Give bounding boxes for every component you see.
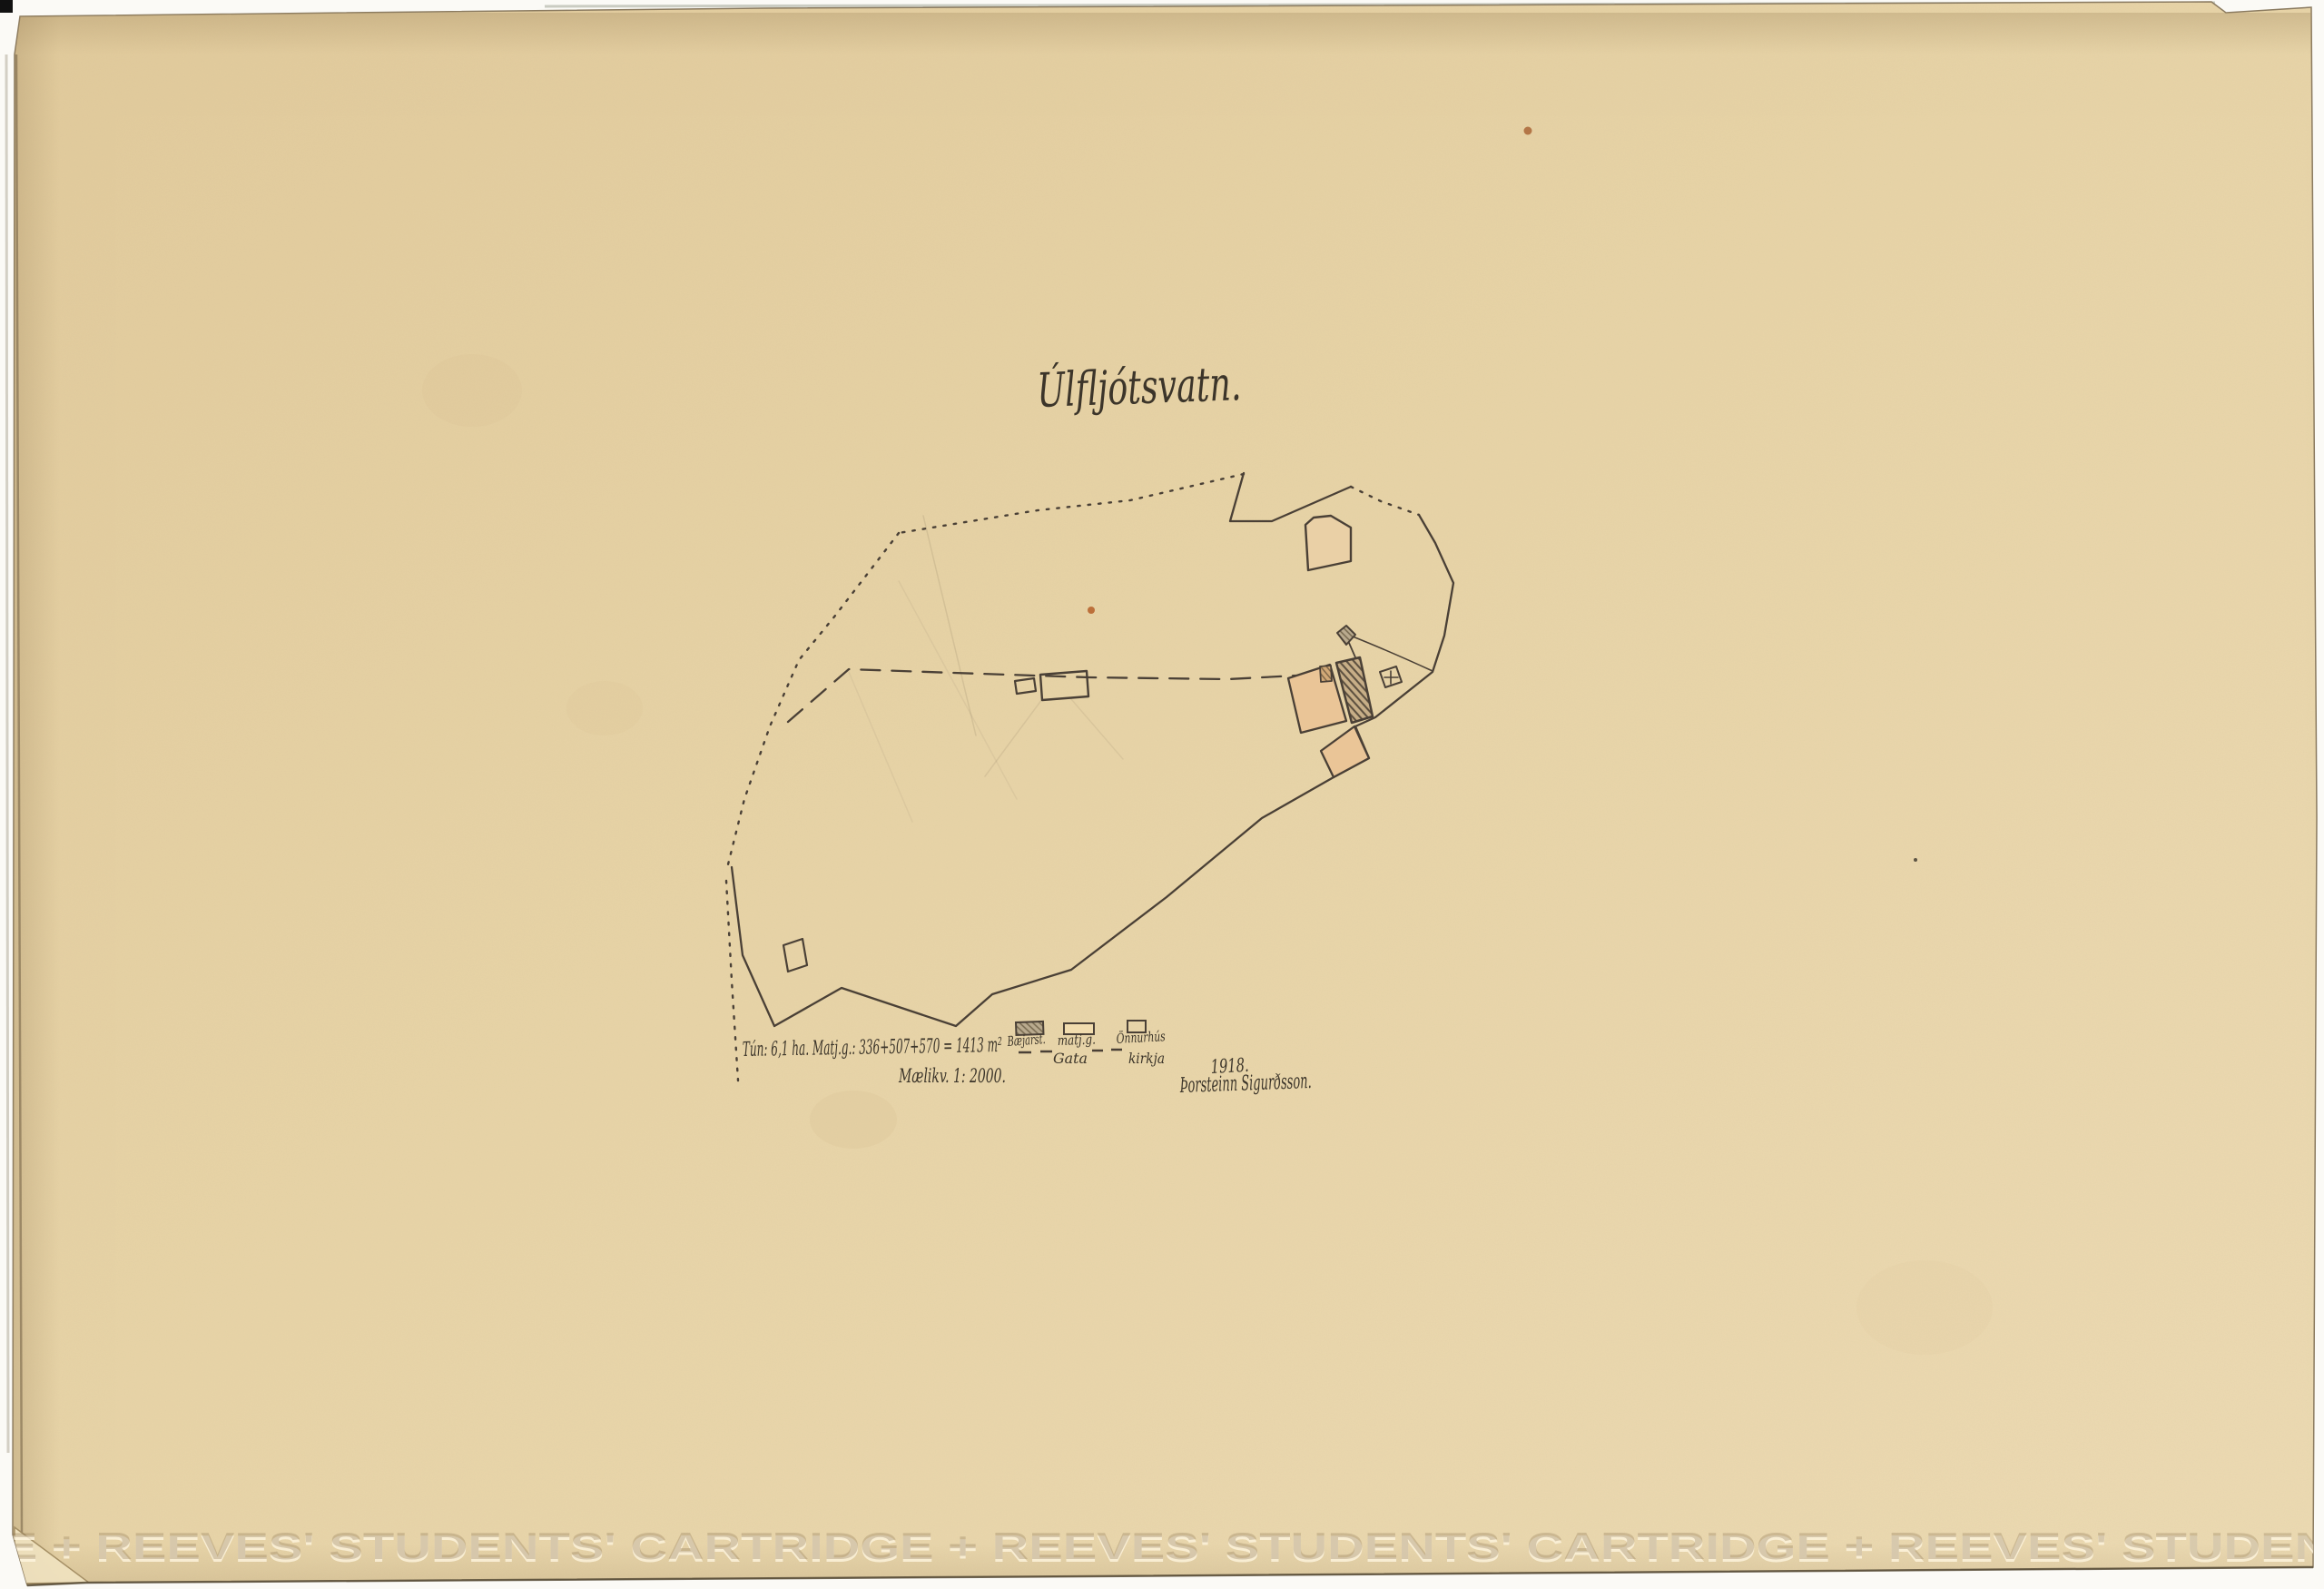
- stain: [1856, 1260, 1993, 1355]
- enclosure-pentagon-orange: [1305, 516, 1351, 570]
- legend-label-baejarstaedi: Bæjarst.: [1006, 1031, 1046, 1050]
- map-title: Úlfljótsvatn.: [1036, 355, 1242, 419]
- area-note: Tún: 6,1 ha. Matj.g.: 336+507+570 = 1413…: [743, 1034, 1002, 1061]
- legend-label-kirkja: kirkja: [1128, 1050, 1165, 1067]
- stain: [422, 354, 522, 427]
- scale-note: Mælikv. 1: 2000.: [898, 1065, 1006, 1087]
- paper-top-shadow: [0, 13, 2324, 54]
- paper-texture: [0, 0, 2324, 1589]
- backing-sheet-edge-left: [6, 54, 8, 1453]
- legend-label-onnur-hus: Önnurhús: [1116, 1028, 1166, 1047]
- stain: [810, 1091, 897, 1149]
- ink-speck: [1914, 858, 1917, 862]
- legend-label-matjurtagardur: matj.g.: [1058, 1031, 1097, 1049]
- legend-label-gata: Gata: [1053, 1050, 1088, 1067]
- surveyor-signature: Þorsteinn Sigurðsson.: [1179, 1070, 1312, 1098]
- rust-speck: [1088, 607, 1095, 614]
- watermark-emboss-shadow: GE + REEVES' STUDENTS' CARTRIDGE + REEVE…: [0, 1525, 2324, 1567]
- stain: [566, 681, 643, 735]
- rust-speck: [1524, 127, 1532, 135]
- garden-annex-hatched: [1320, 666, 1332, 682]
- scan-corner-mark: [0, 0, 13, 13]
- scanned-map-document: GE + REEVES' STUDENTS' CARTRIDGE + REEVE…: [0, 0, 2324, 1589]
